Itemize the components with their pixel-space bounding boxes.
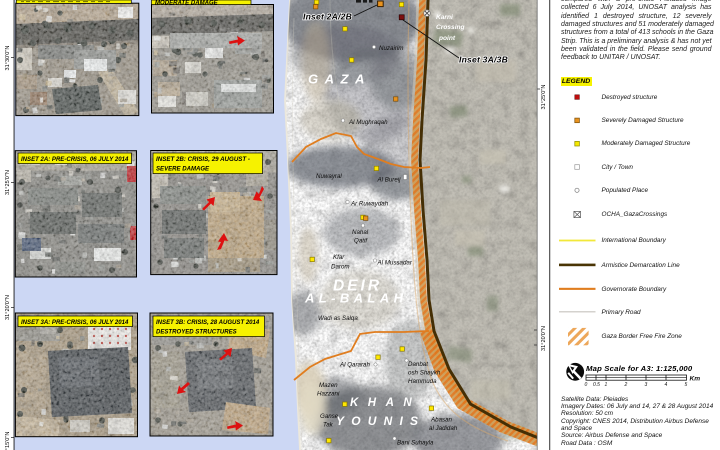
svg-text:INSET 3B: CRISIS, 28 AUGUST 20: INSET 3B: CRISIS, 28 AUGUST 2014 bbox=[156, 320, 260, 326]
svg-text:31°25'0"N: 31°25'0"N bbox=[5, 170, 11, 195]
svg-text:Qatif: Qatif bbox=[354, 238, 368, 245]
svg-text:KHAN: KHAN bbox=[350, 397, 421, 409]
svg-text:Bani Suhayla: Bani Suhayla bbox=[397, 440, 434, 447]
svg-text:Danbat: Danbat bbox=[408, 361, 428, 368]
svg-text:2: 2 bbox=[624, 382, 628, 388]
svg-text:5: 5 bbox=[685, 382, 688, 388]
svg-text:Al Bureij: Al Bureij bbox=[377, 177, 402, 184]
svg-text:31°20'0"N: 31°20'0"N bbox=[541, 326, 547, 351]
svg-text:0: 0 bbox=[585, 382, 588, 388]
svg-text:INSET 2A: PRE-CRISIS, 06 JULY: INSET 2A: PRE-CRISIS, 06 JULY 2014 bbox=[21, 157, 129, 163]
svg-text:Abasan: Abasan bbox=[430, 417, 453, 424]
svg-text:point: point bbox=[438, 35, 456, 42]
svg-text:Karni: Karni bbox=[436, 14, 453, 21]
svg-text:Inset 3A/3B: Inset 3A/3B bbox=[459, 55, 508, 65]
svg-text:Mazen: Mazen bbox=[319, 382, 338, 389]
svg-text:0.5: 0.5 bbox=[593, 382, 600, 388]
svg-text:Al Mughraqah: Al Mughraqah bbox=[348, 119, 388, 126]
svg-text:1: 1 bbox=[605, 382, 608, 388]
svg-text:osh Shaykh: osh Shaykh bbox=[408, 370, 441, 377]
svg-text:AL-BALAH: AL-BALAH bbox=[304, 291, 407, 306]
svg-text:MODERATE DAMAGE: MODERATE DAMAGE bbox=[155, 1, 219, 7]
svg-text:INSET 2B: CRISIS, 29 AUGUST -: INSET 2B: CRISIS, 29 AUGUST - bbox=[156, 156, 250, 163]
svg-text:INSET 3A: PRE-CRISIS, 06 JULY: INSET 3A: PRE-CRISIS, 06 JULY 2014 bbox=[21, 320, 129, 326]
svg-text:Crossing: Crossing bbox=[436, 24, 465, 31]
svg-text:Kfar: Kfar bbox=[333, 254, 345, 261]
svg-text:31°25'0"N: 31°25'0"N bbox=[541, 85, 547, 110]
svg-text:Ar Ruwaydah: Ar Ruwaydah bbox=[350, 201, 389, 208]
svg-text:SEVERE DAMAGE: SEVERE DAMAGE bbox=[156, 167, 210, 173]
svg-text:Hazzani: Hazzani bbox=[317, 391, 340, 398]
svg-text:3: 3 bbox=[645, 382, 648, 388]
svg-text:Al Qararah: Al Qararah bbox=[339, 362, 370, 369]
svg-text:DESTROYED STRUCTURES: DESTROYED STRUCTURES bbox=[156, 330, 237, 336]
svg-text:Nuwayral: Nuwayral bbox=[316, 173, 342, 180]
svg-text:Darom: Darom bbox=[331, 264, 350, 271]
svg-text:Al Mussadar: Al Mussadar bbox=[377, 260, 413, 267]
svg-text:al Jadidah: al Jadidah bbox=[429, 425, 458, 432]
svg-text:YOUNIS: YOUNIS bbox=[336, 414, 425, 428]
svg-text:GAZA: GAZA bbox=[308, 72, 371, 87]
svg-text:Hammuda: Hammuda bbox=[408, 378, 437, 385]
svg-text:Ganse: Ganse bbox=[320, 413, 339, 420]
svg-text:31°20'0"N: 31°20'0"N bbox=[5, 295, 11, 320]
svg-text:Wadi as Salqa: Wadi as Salqa bbox=[318, 315, 358, 322]
svg-text:Km: Km bbox=[690, 376, 701, 383]
svg-text:31°15'0"N: 31°15'0"N bbox=[5, 432, 11, 450]
svg-text:31°30'0"N: 31°30'0"N bbox=[5, 46, 11, 71]
svg-text:4: 4 bbox=[665, 382, 668, 388]
svg-text:Nahal: Nahal bbox=[352, 229, 369, 236]
svg-text:Inset 2A/2B: Inset 2A/2B bbox=[303, 12, 352, 22]
svg-text:Tak: Tak bbox=[323, 422, 334, 429]
svg-text:Nuzairim: Nuzairim bbox=[379, 45, 403, 52]
